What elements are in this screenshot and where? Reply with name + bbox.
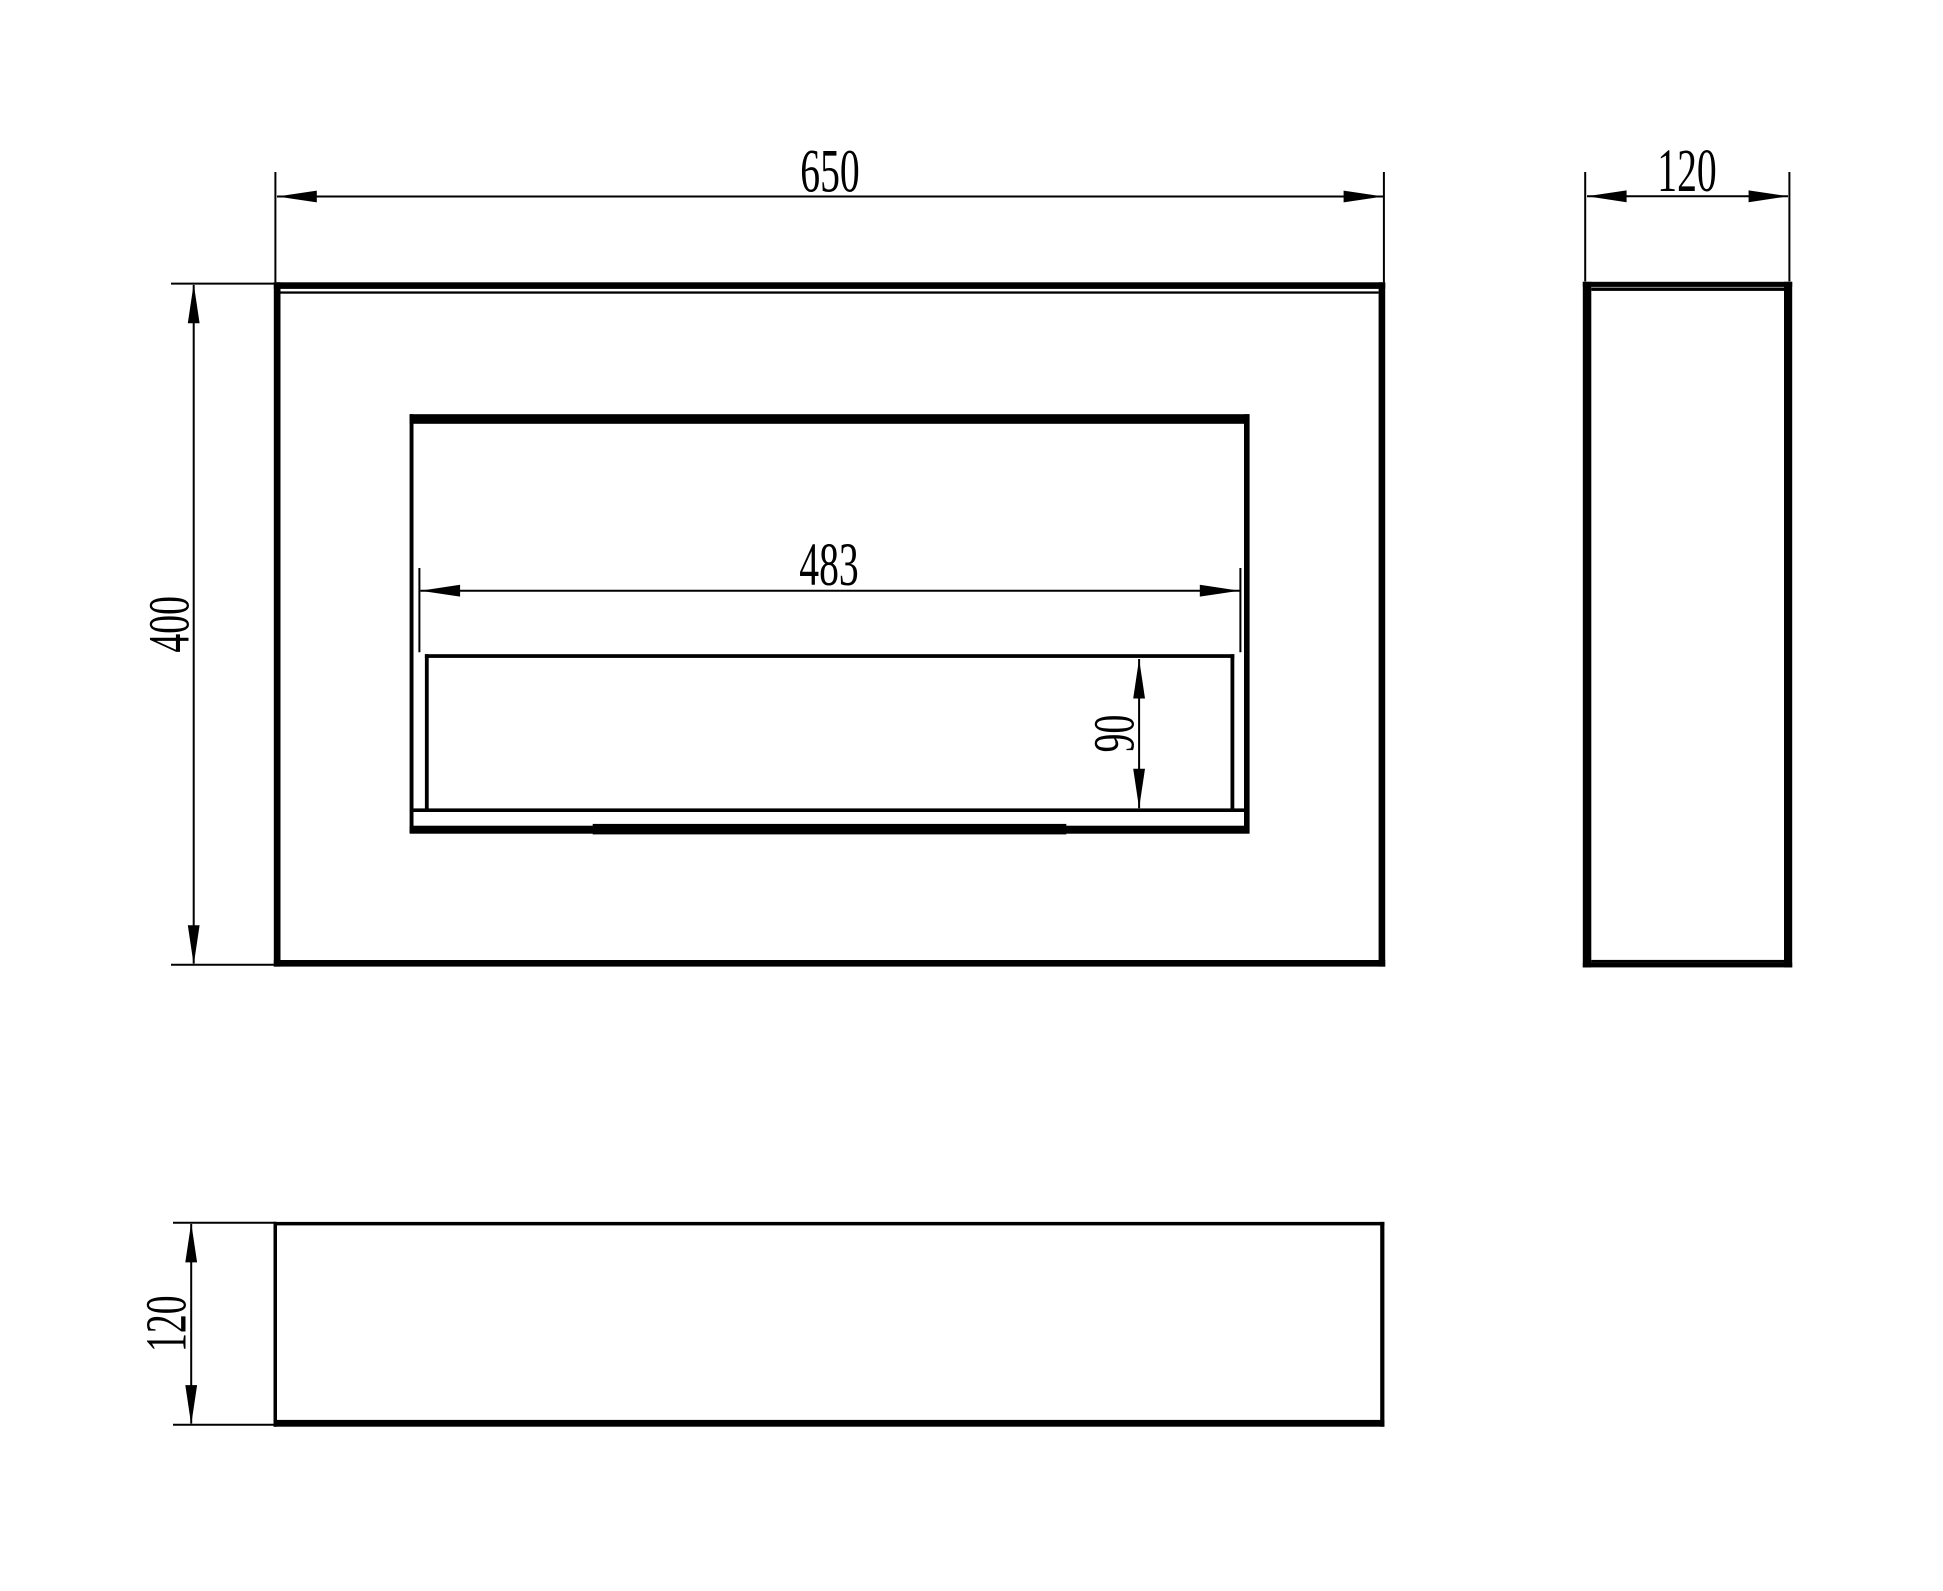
svg-text:120: 120 bbox=[1657, 138, 1716, 206]
svg-text:400: 400 bbox=[136, 596, 201, 653]
svg-text:90: 90 bbox=[1081, 715, 1146, 753]
svg-text:650: 650 bbox=[800, 138, 859, 206]
svg-text:483: 483 bbox=[799, 532, 858, 600]
svg-text:120: 120 bbox=[133, 1295, 198, 1352]
